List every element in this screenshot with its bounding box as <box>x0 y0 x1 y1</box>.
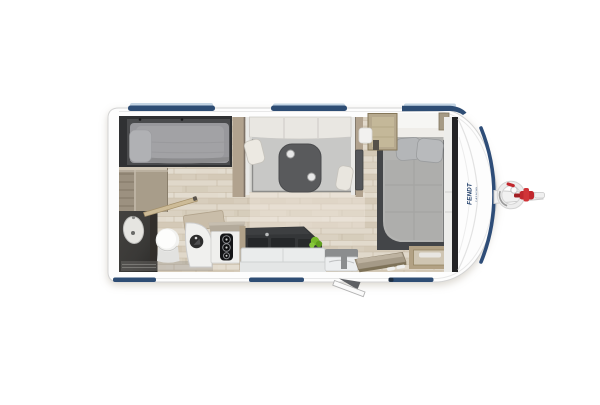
svg-text:FENDT: FENDT <box>467 182 474 205</box>
svg-text:CARAVAN: CARAVAN <box>475 186 478 202</box>
